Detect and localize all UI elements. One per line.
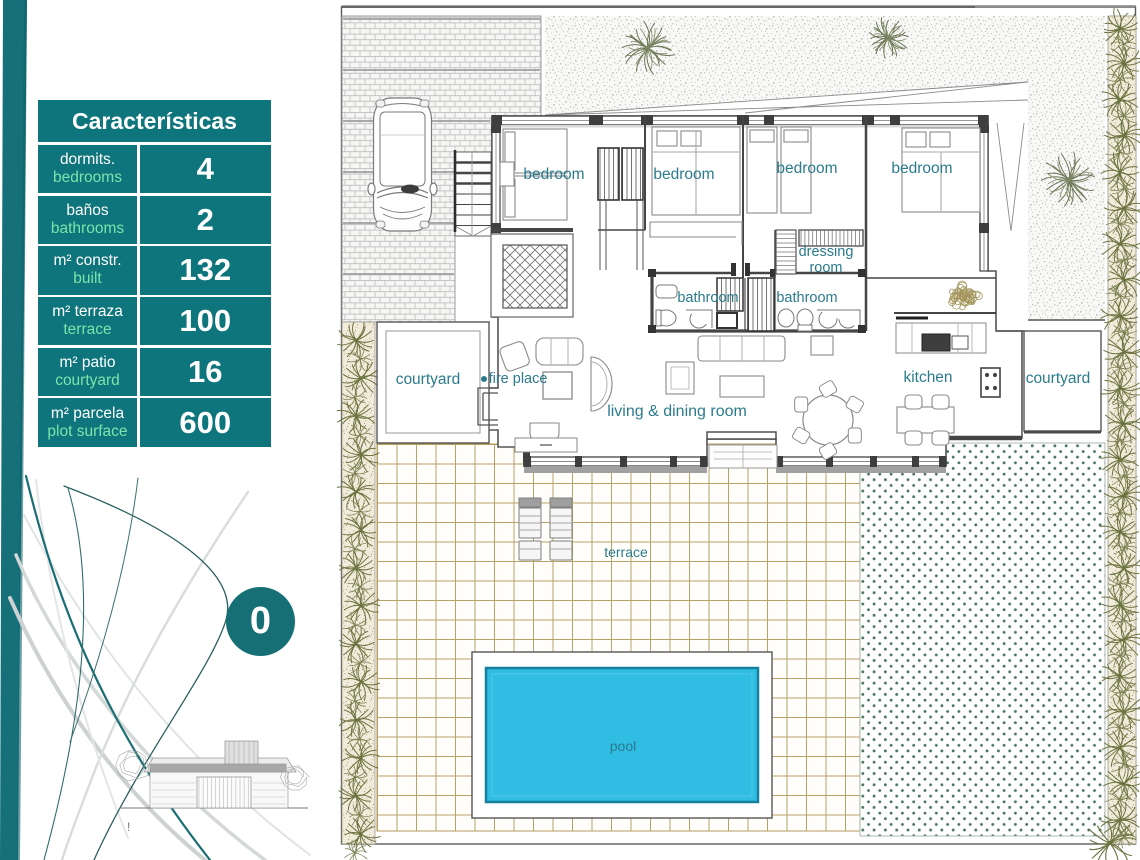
svg-text:pool: pool bbox=[610, 738, 636, 754]
svg-text:bathroom: bathroom bbox=[677, 290, 738, 306]
svg-text:courtyard: courtyard bbox=[396, 371, 461, 388]
svg-text:dressing: dressing bbox=[799, 244, 854, 260]
svg-text:bedroom: bedroom bbox=[891, 160, 952, 177]
svg-text:fire place: fire place bbox=[489, 371, 548, 387]
svg-text:bathroom: bathroom bbox=[776, 290, 837, 306]
svg-text:bedroom: bedroom bbox=[653, 166, 714, 183]
svg-text:bedroom: bedroom bbox=[776, 160, 837, 177]
svg-text:room: room bbox=[809, 260, 842, 276]
svg-text:!: ! bbox=[127, 820, 130, 834]
svg-text:living & dining room: living & dining room bbox=[607, 403, 747, 420]
svg-text:kitchen: kitchen bbox=[903, 369, 952, 386]
svg-text:bedroom: bedroom bbox=[523, 166, 584, 183]
svg-text:courtyard: courtyard bbox=[1026, 370, 1091, 387]
svg-text:terrace: terrace bbox=[604, 544, 648, 560]
